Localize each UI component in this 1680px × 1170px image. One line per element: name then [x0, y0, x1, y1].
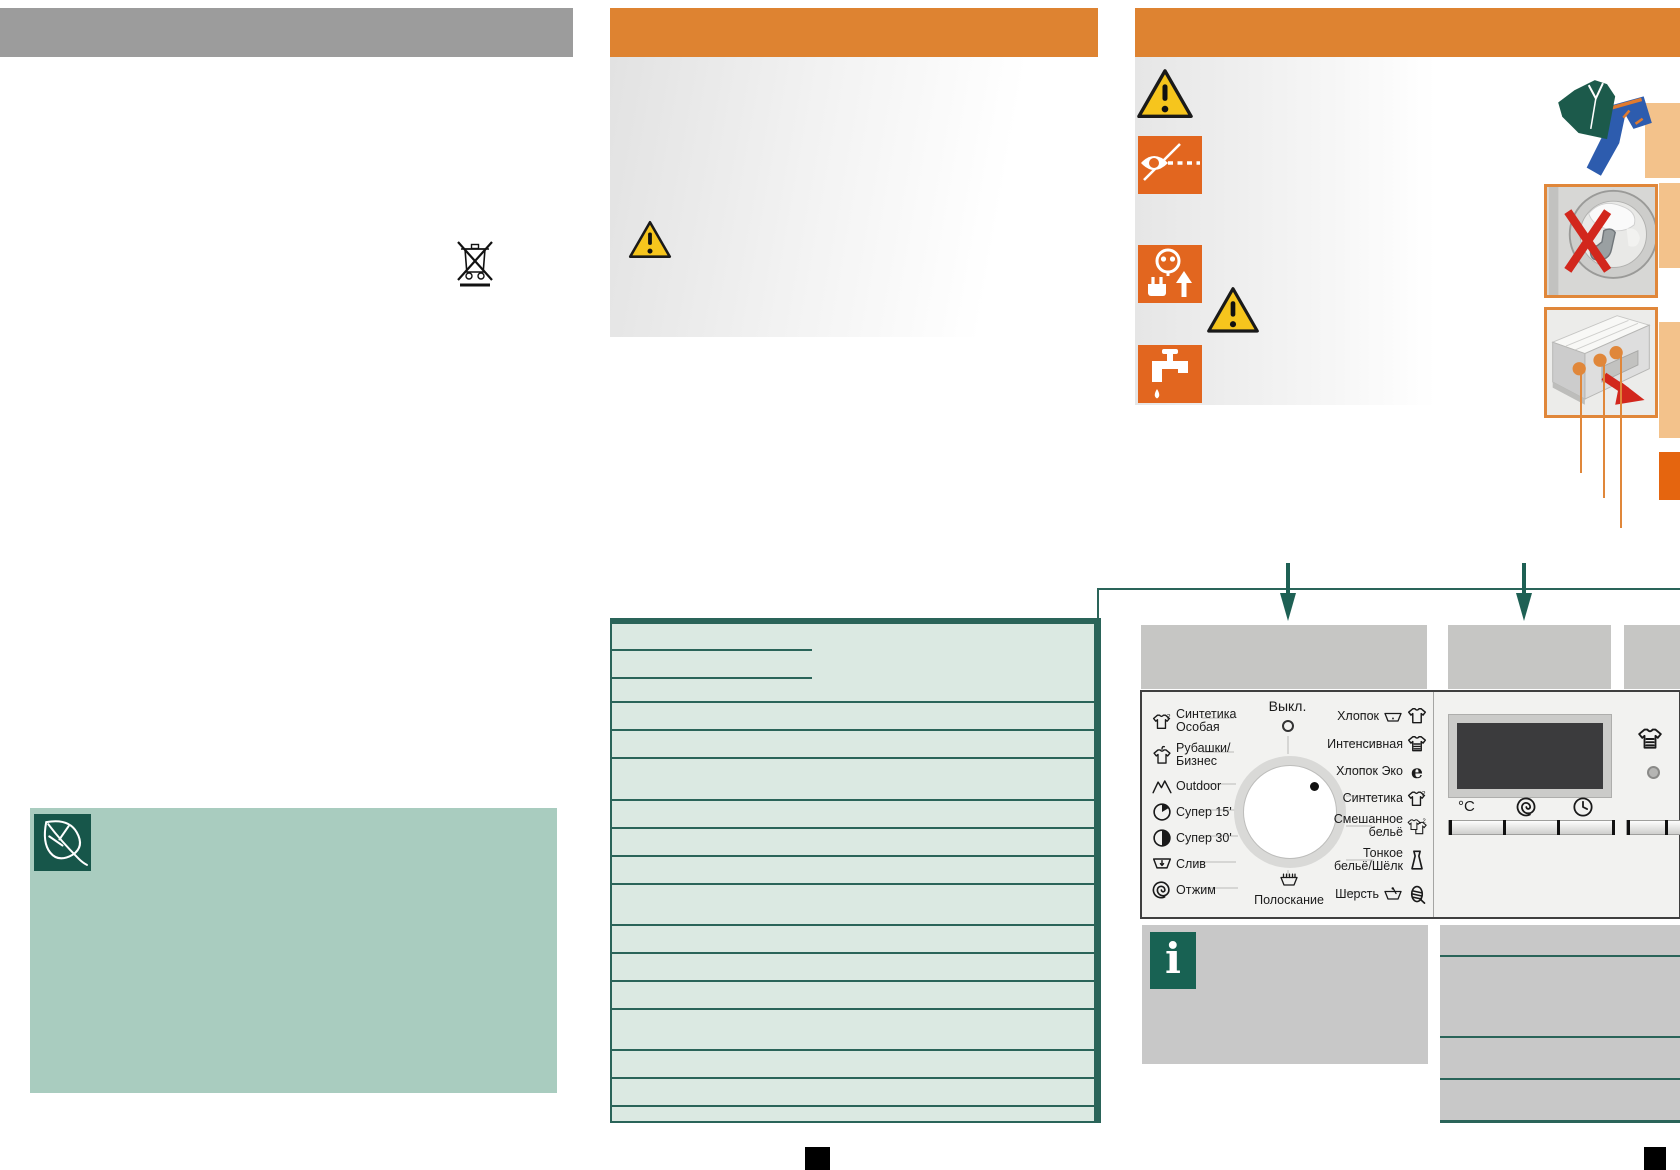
synthetics-special-icon: 2	[1152, 711, 1172, 731]
panel-divider	[1433, 692, 1434, 917]
option-buttons	[1448, 820, 1614, 835]
intensive-wash-icon	[1407, 734, 1427, 754]
dial-program: Тонкоебельё/Шёлк	[1334, 847, 1427, 873]
rinse-icon	[1279, 870, 1299, 890]
table-rule	[1440, 1078, 1680, 1080]
button-separator	[1449, 820, 1452, 835]
outdoor-icon	[1152, 776, 1172, 796]
svg-text:2: 2	[1167, 713, 1171, 720]
chapter-tab	[1659, 452, 1680, 500]
button-separator	[1612, 820, 1615, 835]
table-rule	[612, 1008, 1094, 1010]
right-column-header-bar	[1135, 8, 1680, 57]
finish-time-icon	[1572, 796, 1594, 818]
temperature-label: °C	[1458, 798, 1475, 815]
leader-line	[1603, 363, 1605, 498]
table-rule	[612, 980, 1094, 982]
dial-indicator-dot	[1310, 782, 1319, 791]
program-label: Хлопок	[1337, 710, 1379, 723]
no-foreign-objects-drum-image	[1544, 184, 1658, 298]
leader-line	[1580, 372, 1582, 473]
table-rule	[612, 1049, 1094, 1051]
dial-program: Слив	[1152, 854, 1206, 874]
dial-program: Интенсивная	[1327, 734, 1427, 754]
wool-icon	[1407, 884, 1427, 904]
dial-program: Хлопок	[1337, 706, 1427, 726]
page-number-marker	[805, 1147, 830, 1170]
delicates-silk-icon	[1407, 850, 1427, 870]
status-led	[1647, 766, 1660, 779]
shirts-business-icon	[1152, 745, 1172, 765]
caption-bar	[1448, 625, 1611, 689]
dial-program: Супер 30'	[1152, 828, 1232, 848]
middle-gradient-panel	[610, 57, 1098, 337]
start-button-bar	[1626, 820, 1680, 835]
leader-line	[1620, 355, 1622, 528]
dial-program: Синтетика2	[1343, 788, 1427, 808]
pointer-arrow-icon	[1279, 563, 1297, 623]
dial-program: Смешанноебельё2	[1334, 813, 1427, 839]
drain-icon	[1152, 854, 1172, 874]
dial-face	[1243, 765, 1337, 859]
caption-table	[1440, 925, 1680, 1123]
svg-text:2: 2	[1422, 818, 1425, 824]
program-label: Outdoor	[1176, 780, 1221, 793]
svg-text:2: 2	[1422, 790, 1426, 797]
table-rule	[612, 677, 812, 679]
table-rule	[612, 757, 1094, 759]
clothes-illustration	[1548, 76, 1662, 188]
info-box: i	[1142, 925, 1428, 1064]
table-rule	[612, 827, 1094, 829]
button-separator	[1503, 820, 1506, 835]
dial-program: Outdoor	[1152, 776, 1221, 796]
caption-bar	[1624, 625, 1680, 689]
rinse-label: Полоскание	[1254, 893, 1324, 907]
program-label: Супер 15'	[1176, 806, 1232, 819]
program-label: Супер 30'	[1176, 832, 1232, 845]
program-label: Слив	[1176, 858, 1206, 871]
page-number-marker	[1644, 1147, 1666, 1170]
pointer-arrow-icon	[1515, 563, 1533, 623]
button-separator	[1627, 820, 1630, 835]
spin-icon	[1152, 880, 1172, 900]
manual-page: Выкл. 2СинтетикаОсобаяРубашки/БизнесOutd…	[0, 0, 1680, 1170]
dial-program: 2СинтетикаОсобая	[1152, 708, 1236, 734]
weee-crossed-bin-icon	[452, 236, 498, 288]
svg-text:e: e	[1411, 761, 1423, 781]
water-tap-off-icon	[1138, 345, 1202, 403]
program-label: Отжим	[1176, 884, 1216, 897]
eco-e-icon: e	[1407, 761, 1427, 781]
table-rule	[612, 924, 1094, 926]
table-rule	[612, 883, 1094, 885]
supervision-eye-icon	[1138, 136, 1202, 194]
dial-program: Отжим	[1152, 880, 1216, 900]
dial-program: Рубашки/Бизнес	[1152, 742, 1231, 768]
unplug-icon	[1138, 245, 1202, 303]
program-label: Интенсивная	[1327, 738, 1403, 751]
table-rule	[612, 701, 1094, 703]
warning-triangle-icon	[1206, 286, 1260, 334]
status-shirt-icon	[1637, 726, 1663, 752]
tshirt-icon	[1407, 706, 1427, 726]
program-label: Хлопок Эко	[1336, 765, 1403, 778]
eco-note-box	[30, 808, 557, 1093]
table-rule	[1440, 1036, 1680, 1038]
button-separator	[1557, 820, 1560, 835]
wash-tub-icon	[1383, 706, 1403, 726]
spin-speed-icon	[1516, 796, 1538, 818]
handwash-icon	[1383, 884, 1403, 904]
peach-strip	[1659, 322, 1680, 438]
program-label: СинтетикаОсобая	[1176, 708, 1236, 734]
synthetics-icon: 2	[1407, 788, 1427, 808]
figure-outline-left	[1097, 588, 1099, 622]
program-label: Смешанноебельё	[1334, 813, 1403, 839]
program-label: Синтетика	[1343, 792, 1403, 805]
program-label: Шерсть	[1335, 888, 1379, 901]
dial-program: Хлопок Экоe	[1336, 761, 1427, 781]
display-screen	[1457, 723, 1603, 789]
figure-outline-top	[1097, 588, 1680, 590]
left-column-header-bar	[0, 8, 573, 57]
program-table	[610, 618, 1101, 1123]
table-rule	[612, 649, 812, 651]
table-rule	[612, 1077, 1094, 1079]
table-rule	[612, 855, 1094, 857]
table-rule	[1440, 955, 1680, 957]
table-rule	[612, 1105, 1094, 1107]
super-15-icon	[1152, 802, 1172, 822]
caption-bar	[1141, 625, 1427, 689]
display-frame	[1448, 714, 1612, 798]
super-30-icon	[1152, 828, 1172, 848]
rinse-program: Полоскание	[1244, 870, 1334, 907]
warning-triangle-icon	[628, 220, 672, 260]
mixed-laundry-icon: 2	[1407, 816, 1427, 836]
table-rule	[612, 799, 1094, 801]
detergent-drawer-image	[1544, 307, 1658, 418]
button-separator	[1665, 820, 1668, 835]
dial-program: Супер 15'	[1152, 802, 1232, 822]
program-label: Рубашки/Бизнес	[1176, 742, 1231, 768]
control-panel-illustration: Выкл. 2СинтетикаОсобаяРубашки/БизнесOutd…	[1140, 690, 1680, 919]
info-icon: i	[1150, 932, 1196, 989]
program-label: Тонкоебельё/Шёлк	[1334, 847, 1403, 873]
table-rule	[612, 952, 1094, 954]
peach-strip	[1659, 183, 1680, 268]
warning-triangle-icon	[1136, 68, 1194, 120]
leaf-icon	[34, 814, 91, 871]
dial-program: Шерсть	[1335, 884, 1427, 904]
program-selector-dial	[1234, 756, 1346, 868]
middle-column-header-bar	[610, 8, 1098, 57]
table-rule	[612, 729, 1094, 731]
